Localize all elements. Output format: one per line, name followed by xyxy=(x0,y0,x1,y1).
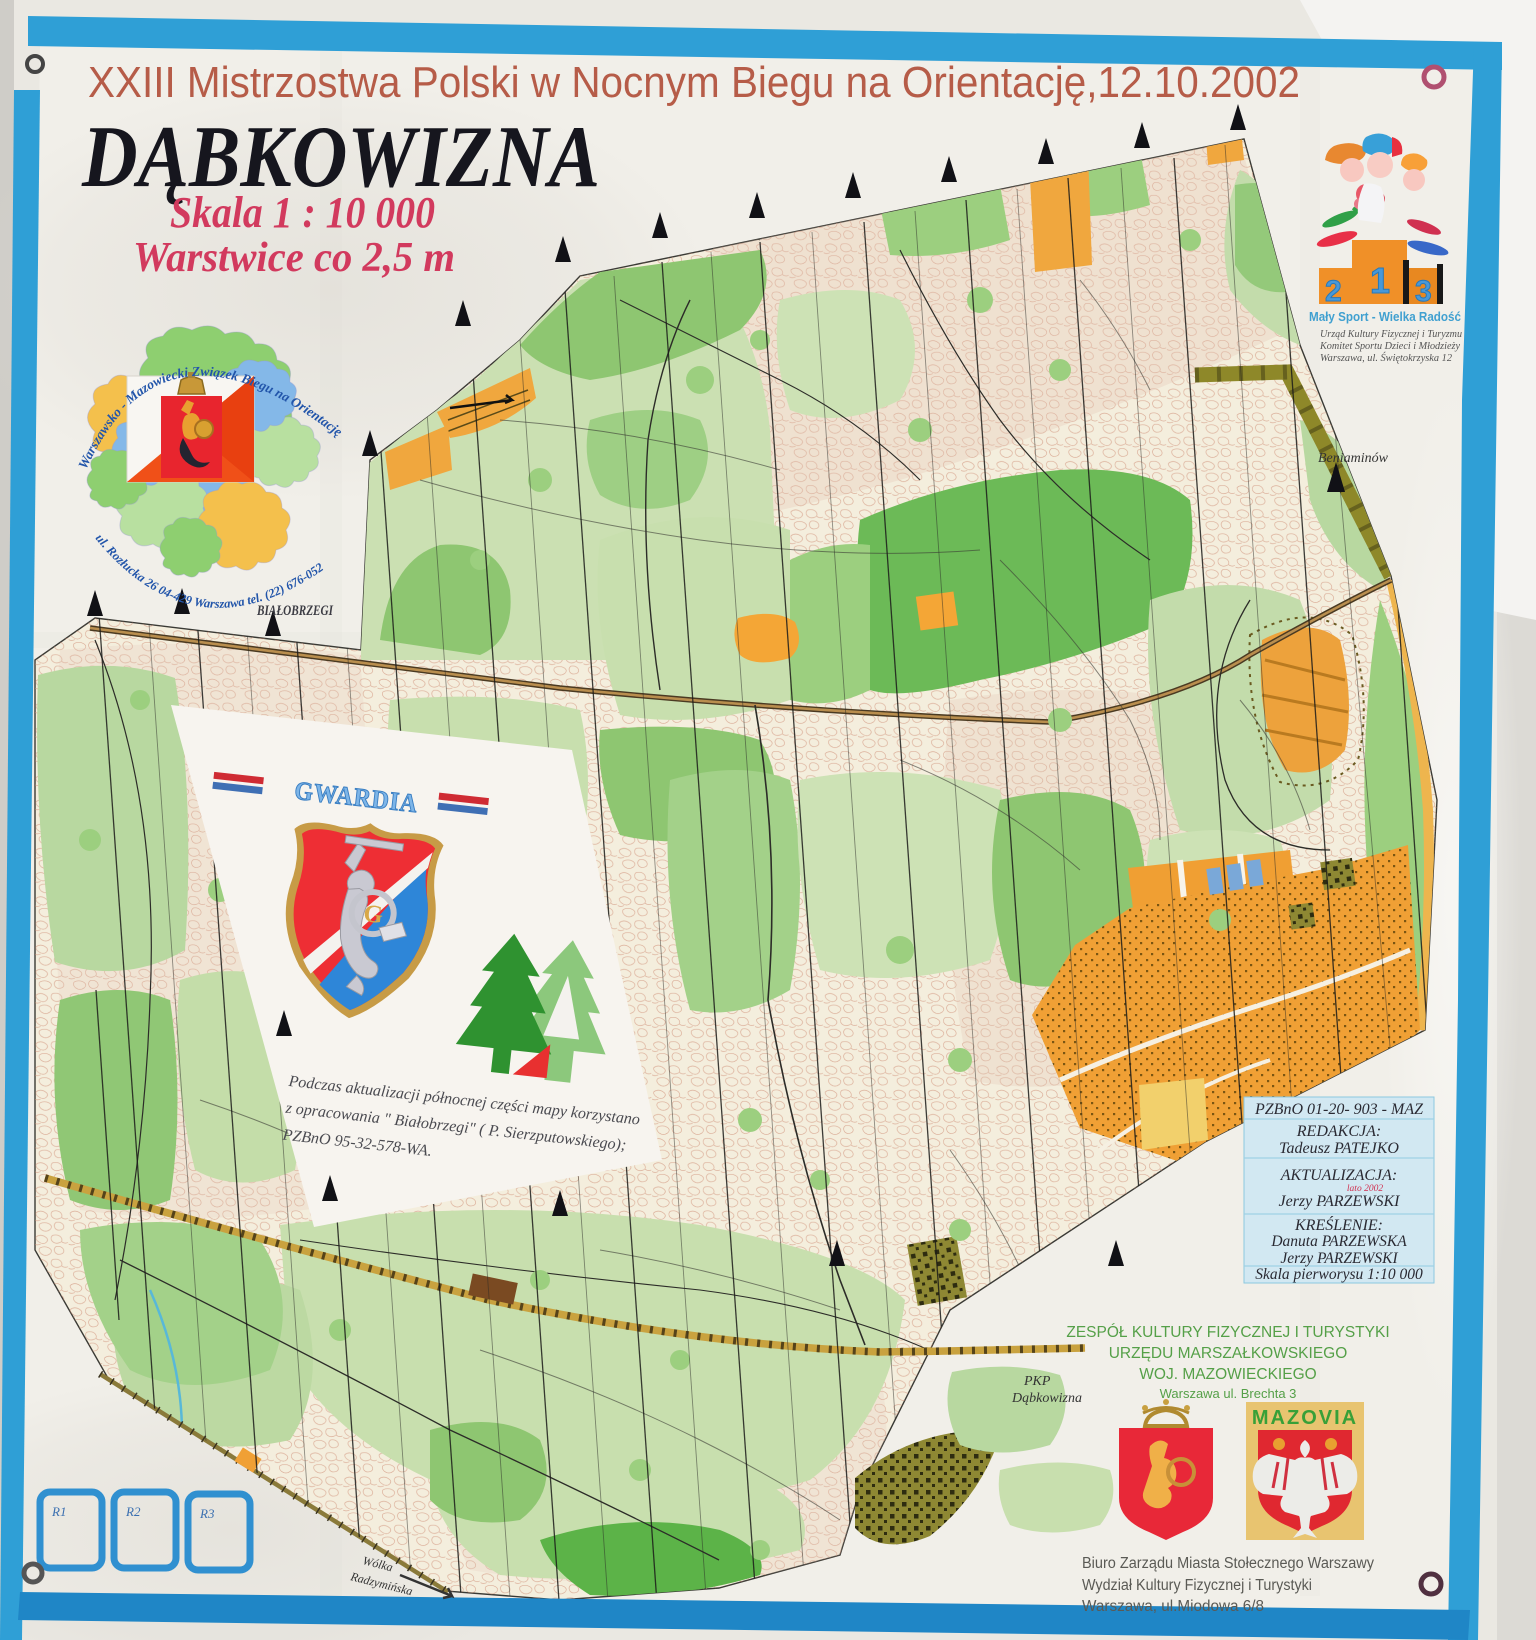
svg-text:ZESPÓŁ KULTURY FIZYCZNEJ I TUR: ZESPÓŁ KULTURY FIZYCZNEJ I TURYSTYKI xyxy=(1066,1324,1389,1341)
svg-text:WOJ. MAZOWIECKIEGO: WOJ. MAZOWIECKIEGO xyxy=(1139,1366,1316,1383)
svg-text:Wydział Kultury Fizycznej i Tu: Wydział Kultury Fizycznej i Turystyki xyxy=(1082,1577,1312,1594)
svg-text:Urząd Kultury Fizycznej i Tury: Urząd Kultury Fizycznej i Turyzmu xyxy=(1320,329,1462,340)
svg-text:R1: R1 xyxy=(51,1504,66,1519)
svg-text:REDAKCJA:: REDAKCJA: xyxy=(1296,1123,1381,1140)
svg-text:PZBnO 01-20- 903 - MAZ: PZBnO 01-20- 903 - MAZ xyxy=(1254,1101,1424,1118)
svg-text:R2: R2 xyxy=(125,1504,141,1519)
svg-text:Jerzy PARZEWSKI: Jerzy PARZEWSKI xyxy=(1280,1250,1398,1267)
svg-text:Komitet Sportu Dzieci i Młodzi: Komitet Sportu Dzieci i Młodzieży xyxy=(1319,341,1461,352)
svg-text:1: 1 xyxy=(1370,260,1390,301)
svg-text:G: G xyxy=(362,900,384,929)
svg-text:Skala pierworysu 1:10 000: Skala pierworysu 1:10 000 xyxy=(1255,1266,1423,1283)
svg-text:AKTUALIZACJA:: AKTUALIZACJA: xyxy=(1280,1167,1397,1184)
svg-text:XXIII Mistrzostwa Polski w No: XXIII Mistrzostwa Polski w Nocnym Biegu … xyxy=(88,58,1300,107)
svg-text:Warszawa, ul.Miodowa 6/8: Warszawa, ul.Miodowa 6/8 xyxy=(1082,1598,1264,1615)
svg-text:Warszawa ul. Brechta 3: Warszawa ul. Brechta 3 xyxy=(1160,1386,1297,1401)
svg-text:2: 2 xyxy=(1325,275,1342,308)
svg-text:Tadeusz PATEJKO: Tadeusz PATEJKO xyxy=(1279,1140,1399,1157)
svg-text:KREŚLENIE:: KREŚLENIE: xyxy=(1294,1215,1383,1234)
svg-text:Mały Sport - Wielka Radość: Mały Sport - Wielka Radość xyxy=(1309,309,1461,324)
svg-text:MAZOVIA: MAZOVIA xyxy=(1252,1407,1358,1429)
svg-text:Warstwice co 2,5 m: Warstwice co 2,5 m xyxy=(133,235,455,281)
svg-text:PKP: PKP xyxy=(1023,1374,1051,1389)
svg-text:Dąbkowizna: Dąbkowizna xyxy=(1011,1391,1082,1406)
svg-text:Jerzy PARZEWSKI: Jerzy PARZEWSKI xyxy=(1278,1193,1400,1210)
svg-text:Beniaminów: Beniaminów xyxy=(1318,451,1389,466)
svg-text:BIAŁOBRZEGI: BIAŁOBRZEGI xyxy=(256,603,334,619)
svg-text:Biuro Zarządu Miasta Stołeczne: Biuro Zarządu Miasta Stołecznego Warszaw… xyxy=(1082,1555,1374,1572)
svg-text:Skala 1 : 10 000: Skala 1 : 10 000 xyxy=(170,188,435,237)
svg-text:Warszawa, ul. Świętokrzyska 12: Warszawa, ul. Świętokrzyska 12 xyxy=(1320,352,1452,364)
svg-text:Danuta PARZEWSKA: Danuta PARZEWSKA xyxy=(1270,1233,1407,1250)
svg-text:3: 3 xyxy=(1415,275,1432,308)
svg-text:R3: R3 xyxy=(199,1506,215,1521)
svg-text:URZĘDU MARSZAŁKOWSKIEGO: URZĘDU MARSZAŁKOWSKIEGO xyxy=(1109,1345,1348,1362)
